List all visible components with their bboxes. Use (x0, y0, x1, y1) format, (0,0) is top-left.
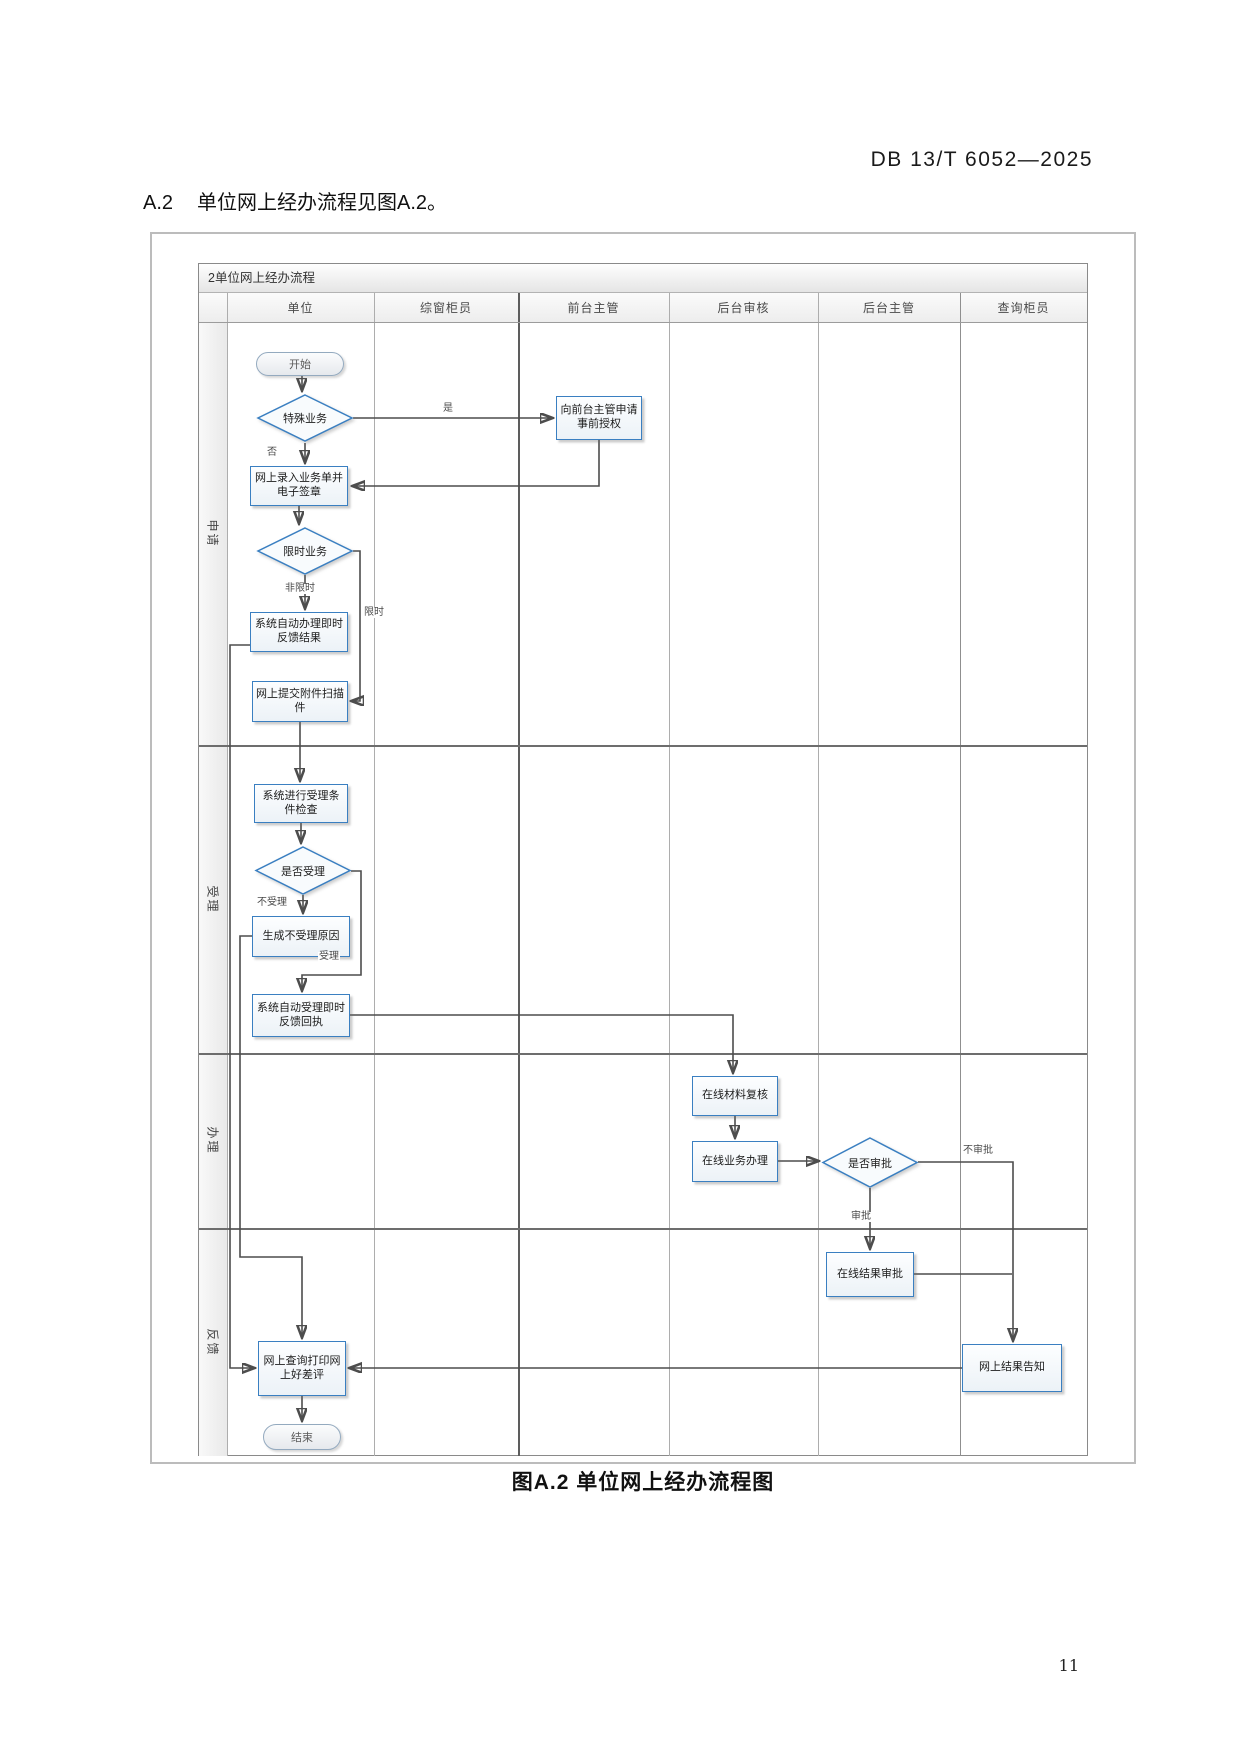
node-special-business: 特殊业务 (257, 394, 353, 442)
grid-line (199, 1228, 1087, 1230)
column-header-zongchuang: 综窗柜员 (374, 293, 518, 322)
page-number: 11 (1059, 1656, 1079, 1675)
stage-label-shenqing: 申请 (199, 322, 227, 745)
edge-label-approved: 审批 (850, 1212, 872, 1222)
node-auto-process: 系统自动办理即时反馈结果 (250, 612, 348, 652)
edge-label-yes: 是 (442, 404, 454, 414)
stage-label-shouli: 受理 (199, 745, 227, 1053)
column-header-chaxun: 查询柜员 (960, 293, 1087, 322)
node-start: 开始 (256, 352, 344, 376)
grid-line (518, 293, 520, 1456)
node-result-approve: 在线结果审批 (826, 1252, 914, 1297)
node-auto-accept: 系统自动受理即时反馈回执 (252, 994, 350, 1037)
column-header-qiantai: 前台主管 (518, 293, 669, 322)
section-heading: A.2单位网上经办流程见图A.2。 (143, 186, 447, 215)
node-online-entry: 网上录入业务单并电子签章 (250, 466, 348, 506)
grid-line (199, 745, 1087, 747)
edge-label-accepted: 受理 (318, 952, 340, 962)
edge-label-no: 否 (266, 448, 278, 458)
standard-code-header: DB 13/T 6052—2025 (871, 148, 1093, 172)
grid-line (374, 293, 375, 1456)
stage-label-banli: 办理 (199, 1053, 227, 1228)
edge-label-not-approved: 不审批 (962, 1146, 994, 1156)
figure-caption: 图A.2 单位网上经办流程图 (150, 1466, 1136, 1496)
grid-line (199, 322, 1087, 323)
node-query-print: 网上查询打印网上好差评 (258, 1341, 346, 1396)
node-time-limited: 限时业务 (257, 527, 353, 575)
node-pre-auth: 向前台主管申请事前授权 (556, 396, 642, 440)
header-corner-cell (199, 293, 227, 322)
section-text: 单位网上经办流程见图A.2。 (197, 192, 447, 214)
stage-label-fankui: 反馈 (199, 1228, 227, 1456)
grid-line (960, 293, 961, 1456)
edge-label-time-limited: 限时 (363, 608, 385, 618)
column-header-houtai-zhuguan: 后台主管 (818, 293, 960, 322)
edge-label-not-time-limited: 非限时 (284, 584, 316, 594)
column-header-houtai-shenhe: 后台审核 (669, 293, 818, 322)
section-number: A.2 (143, 192, 173, 215)
node-accept-check: 系统进行受理条件检查 (254, 784, 348, 823)
node-online-handling: 在线业务办理 (692, 1141, 778, 1182)
node-submit-attachment: 网上提交附件扫描件 (252, 681, 348, 722)
node-approve-decision: 是否审批 (822, 1137, 918, 1188)
edge-label-not-accepted: 不受理 (256, 898, 288, 908)
grid-line (818, 293, 819, 1456)
grid-line (669, 293, 670, 1456)
node-result-notify: 网上结果告知 (962, 1344, 1062, 1392)
node-accept-decision: 是否受理 (255, 846, 351, 895)
window-titlebar: 2单位网上经办流程 (199, 264, 1087, 293)
grid-line (227, 293, 228, 1456)
column-header-danwei: 单位 (227, 293, 374, 322)
grid-line (199, 1053, 1087, 1055)
page-root: DB 13/T 6052—2025 A.2单位网上经办流程见图A.2。 2单位网… (0, 0, 1240, 1755)
node-end: 结束 (263, 1424, 341, 1450)
node-material-review: 在线材料复核 (692, 1076, 778, 1116)
